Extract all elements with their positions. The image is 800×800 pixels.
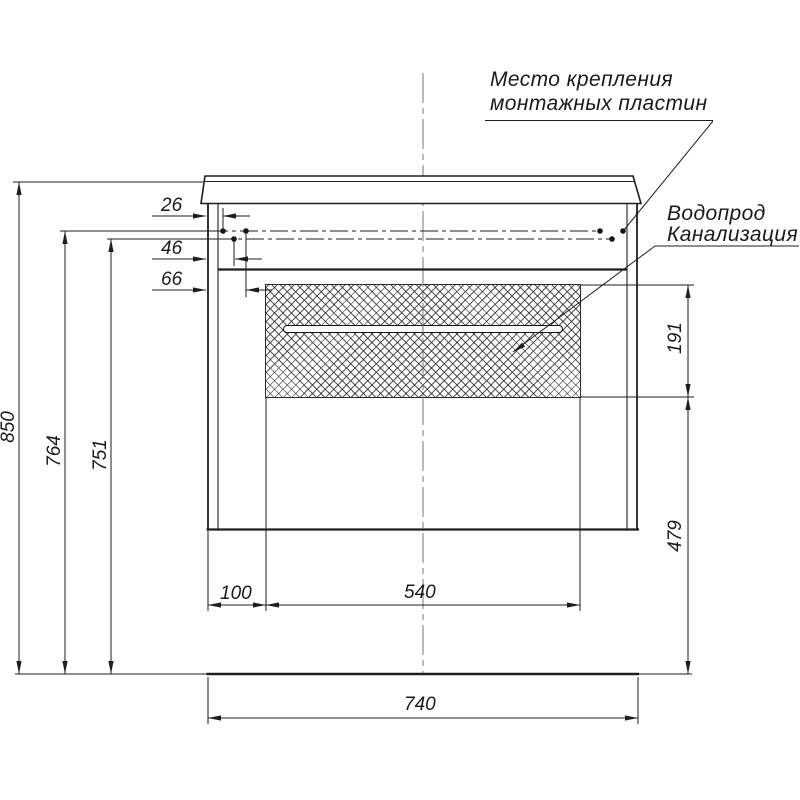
arrow-left-icon (223, 213, 236, 218)
countertop-outline (201, 176, 641, 204)
arrow-right-icon (625, 715, 638, 720)
mounting-dot (597, 228, 603, 234)
mounting-dot-stubs (223, 208, 246, 297)
technical-drawing: Место крепления монтажных пластин Водопр… (0, 0, 800, 800)
arrow-down-icon (16, 661, 21, 674)
dim-740-label: 740 (404, 694, 436, 716)
mounting-dots (220, 228, 626, 242)
mounting-dot (243, 228, 249, 234)
mounting-dot (231, 236, 237, 242)
dim-46-label: 46 (161, 238, 182, 260)
dim-764-label: 764 (45, 421, 65, 481)
countertop (201, 176, 641, 204)
arrow-right-icon (193, 213, 206, 218)
dim-100-label: 100 (220, 583, 252, 605)
note-plumbing-line2: Канализация (667, 223, 798, 247)
dim-bottom-lines (208, 398, 580, 611)
arrow-left-icon (246, 287, 259, 292)
note-mounting-plates-line1: Место крепления (490, 68, 673, 92)
mounting-dot (620, 228, 626, 234)
arrow-left-icon (266, 602, 279, 607)
dimension-arrowheads (16, 182, 690, 721)
arrow-down-icon (685, 384, 690, 397)
dim-751-label: 751 (91, 425, 111, 485)
arrow-left-icon (235, 256, 248, 261)
arrow-down-icon (685, 661, 690, 674)
dim-850-label: 850 (0, 397, 19, 457)
arrow-right-icon (253, 602, 266, 607)
arrow-up-icon (62, 231, 67, 244)
arrow-right-icon (193, 256, 206, 261)
dim-66-label: 66 (161, 269, 182, 291)
arrow-up-icon (16, 182, 21, 195)
dim-26-label: 26 (161, 195, 182, 217)
arrow-up-icon (685, 285, 690, 298)
arrow-left-icon (208, 715, 221, 720)
arrow-right-icon (567, 602, 580, 607)
handle-recess (283, 325, 563, 333)
dim-191-label: 191 (666, 308, 686, 368)
mounting-dot (220, 228, 226, 234)
arrow-down-icon (108, 661, 113, 674)
arrow-up-icon (108, 239, 113, 252)
arrow-up-icon (685, 397, 690, 410)
drawing-linework (0, 0, 800, 800)
arrow-down-icon (62, 661, 67, 674)
dim-479-label: 479 (666, 506, 686, 566)
dim-540-label: 540 (404, 582, 436, 604)
mounting-dot (609, 236, 615, 242)
note-mounting-plates-line2: монтажных пластин (490, 92, 707, 116)
plumbing-access-hatch (265, 284, 581, 398)
arrow-right-icon (193, 287, 206, 292)
